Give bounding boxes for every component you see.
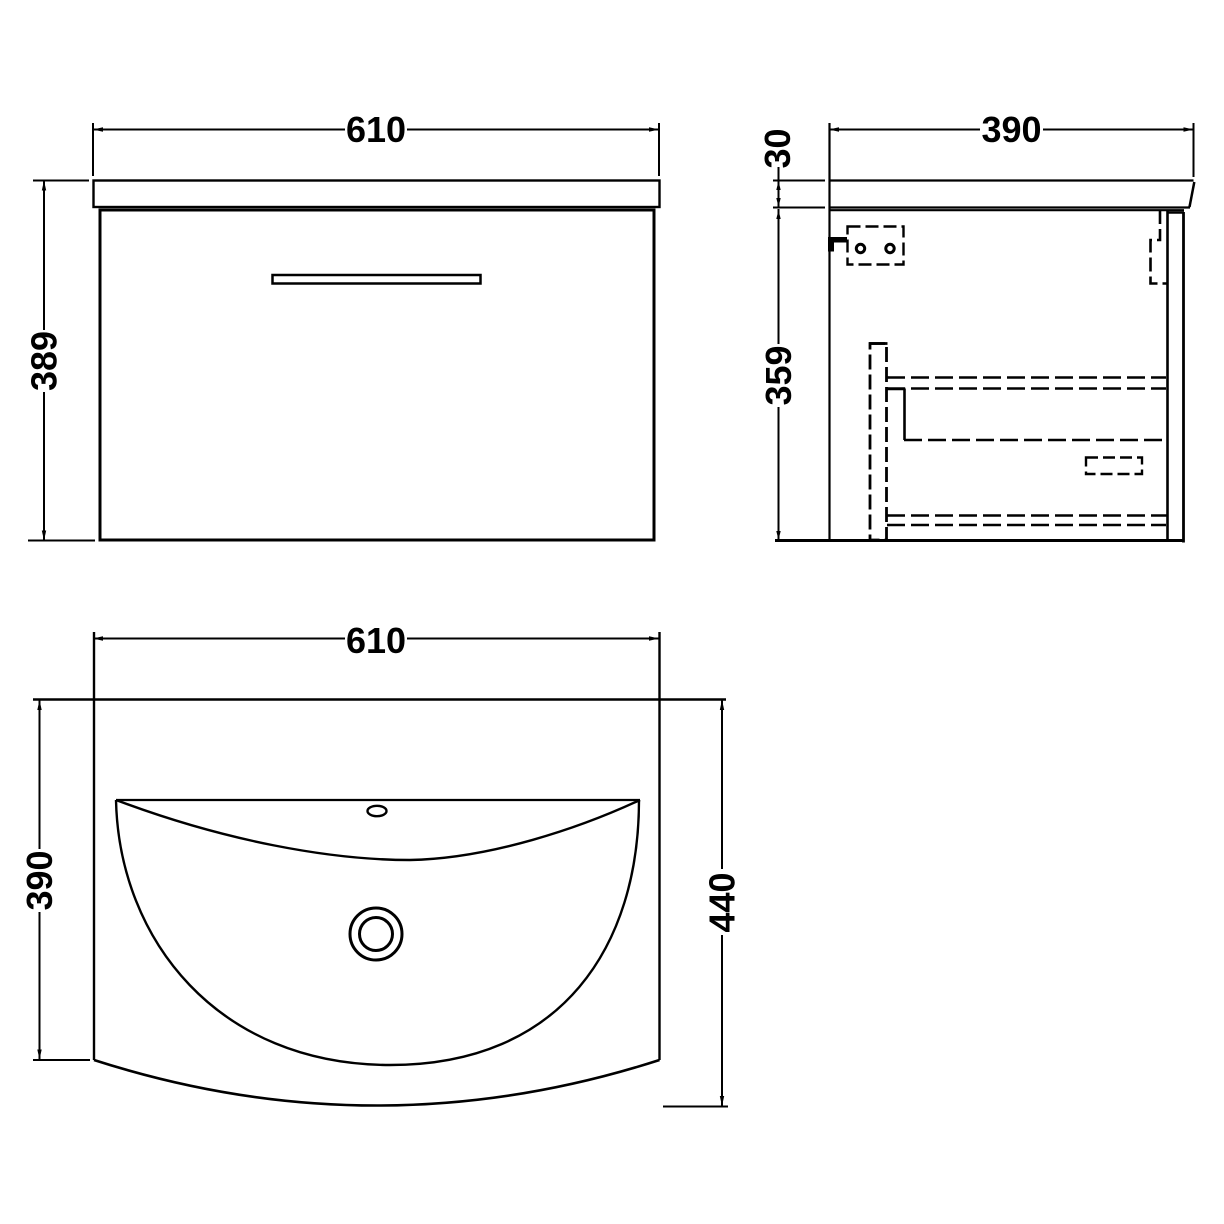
svg-text:610: 610 — [346, 620, 406, 661]
svg-text:440: 440 — [702, 872, 743, 932]
svg-text:359: 359 — [758, 345, 799, 405]
svg-text:390: 390 — [19, 850, 60, 910]
svg-text:389: 389 — [24, 331, 65, 391]
svg-text:610: 610 — [346, 109, 406, 150]
svg-text:390: 390 — [981, 109, 1041, 150]
svg-text:30: 30 — [757, 128, 798, 168]
